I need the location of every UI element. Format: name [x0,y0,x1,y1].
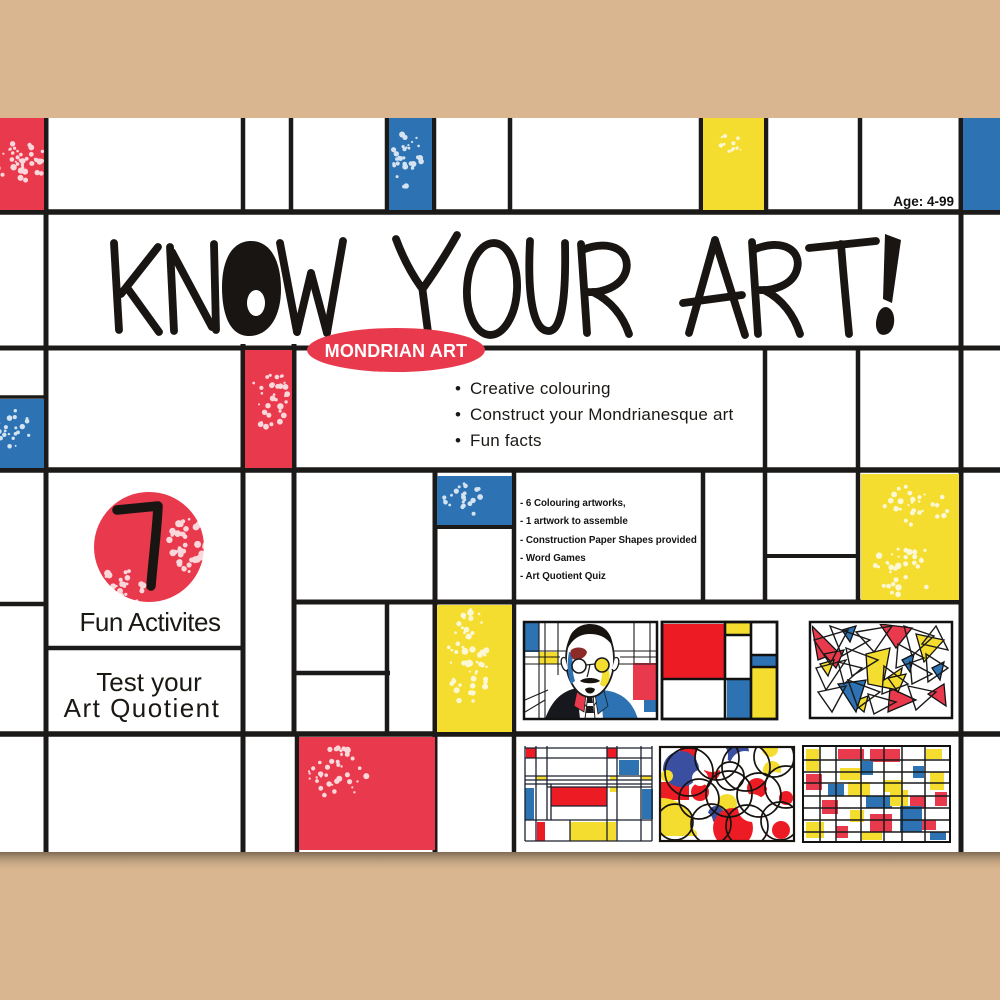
svg-text:•: • [455,405,461,424]
svg-text:Fun Activites: Fun Activites [80,607,221,637]
svg-text:- Art Quotient Quiz: - Art Quotient Quiz [520,571,606,582]
svg-text:MONDRIAN ART: MONDRIAN ART [325,341,468,361]
svg-text:- Word Games: - Word Games [520,553,586,564]
svg-text:•: • [455,431,461,450]
svg-text:Construct your Mondrianesque a: Construct your Mondrianesque art [470,405,733,424]
svg-text:Art Quotient: Art Quotient [64,693,221,723]
svg-text:- 6 Colouring artworks,: - 6 Colouring artworks, [520,498,626,509]
svg-text:- 1 artwork to assemble: - 1 artwork to assemble [520,516,628,527]
svg-text:Creative colouring: Creative colouring [470,379,611,398]
svg-text:- Construction Paper Shapes pr: - Construction Paper Shapes provided [520,535,697,546]
svg-text:Fun facts: Fun facts [470,431,542,450]
svg-text:Age: 4-99: Age: 4-99 [893,194,954,209]
svg-text:•: • [455,379,461,398]
